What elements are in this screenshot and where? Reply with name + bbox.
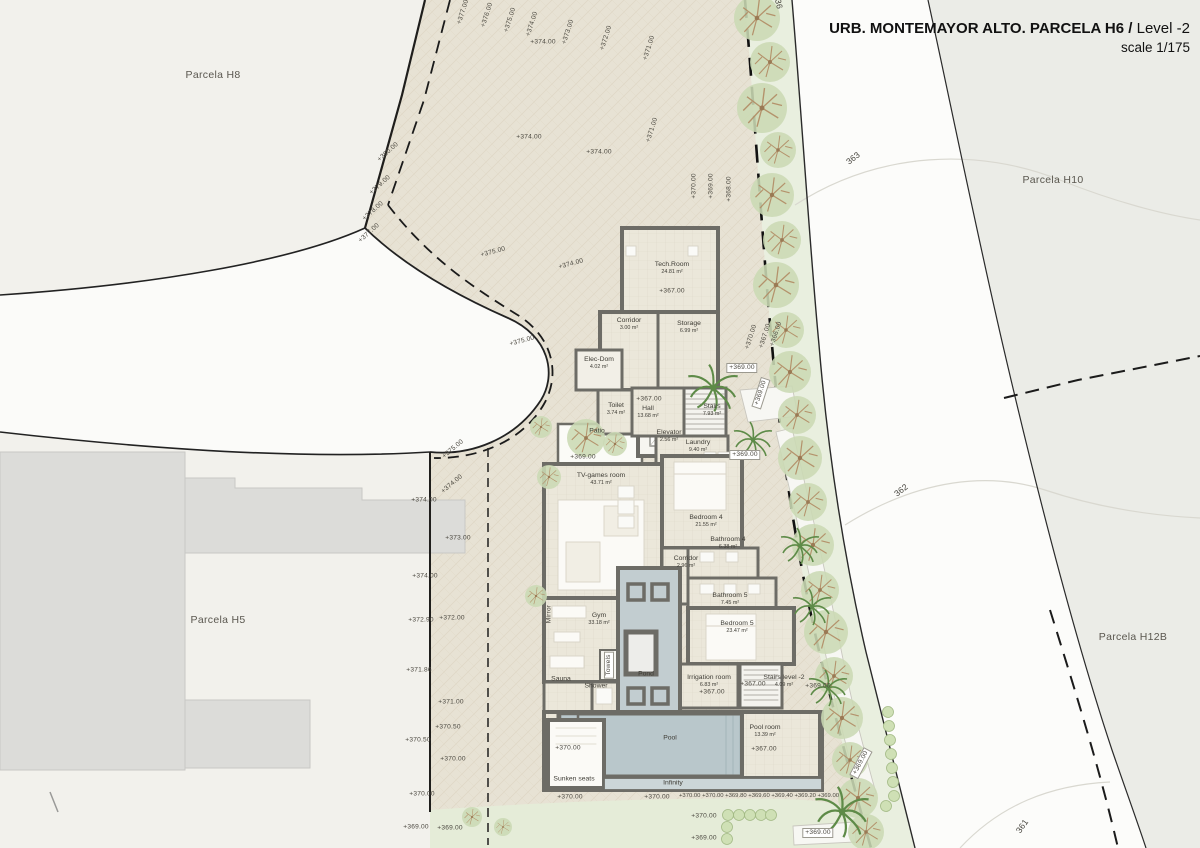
pond bbox=[618, 568, 680, 712]
site-plan-sheet: +377.00+376.00+375.00+374.00+373.00+372.… bbox=[0, 0, 1200, 848]
pool bbox=[544, 712, 822, 790]
sheet-scale: scale 1/175 bbox=[829, 40, 1190, 55]
plan-drawing bbox=[0, 0, 1200, 848]
sheet-title: URB. MONTEMAYOR ALTO. PARCELA H6 / Level… bbox=[829, 20, 1190, 37]
sheet-title-level: Level -2 bbox=[1132, 20, 1190, 37]
title-block: URB. MONTEMAYOR ALTO. PARCELA H6 / Level… bbox=[829, 20, 1190, 55]
sheet-title-main: URB. MONTEMAYOR ALTO. PARCELA H6 / bbox=[829, 20, 1132, 37]
